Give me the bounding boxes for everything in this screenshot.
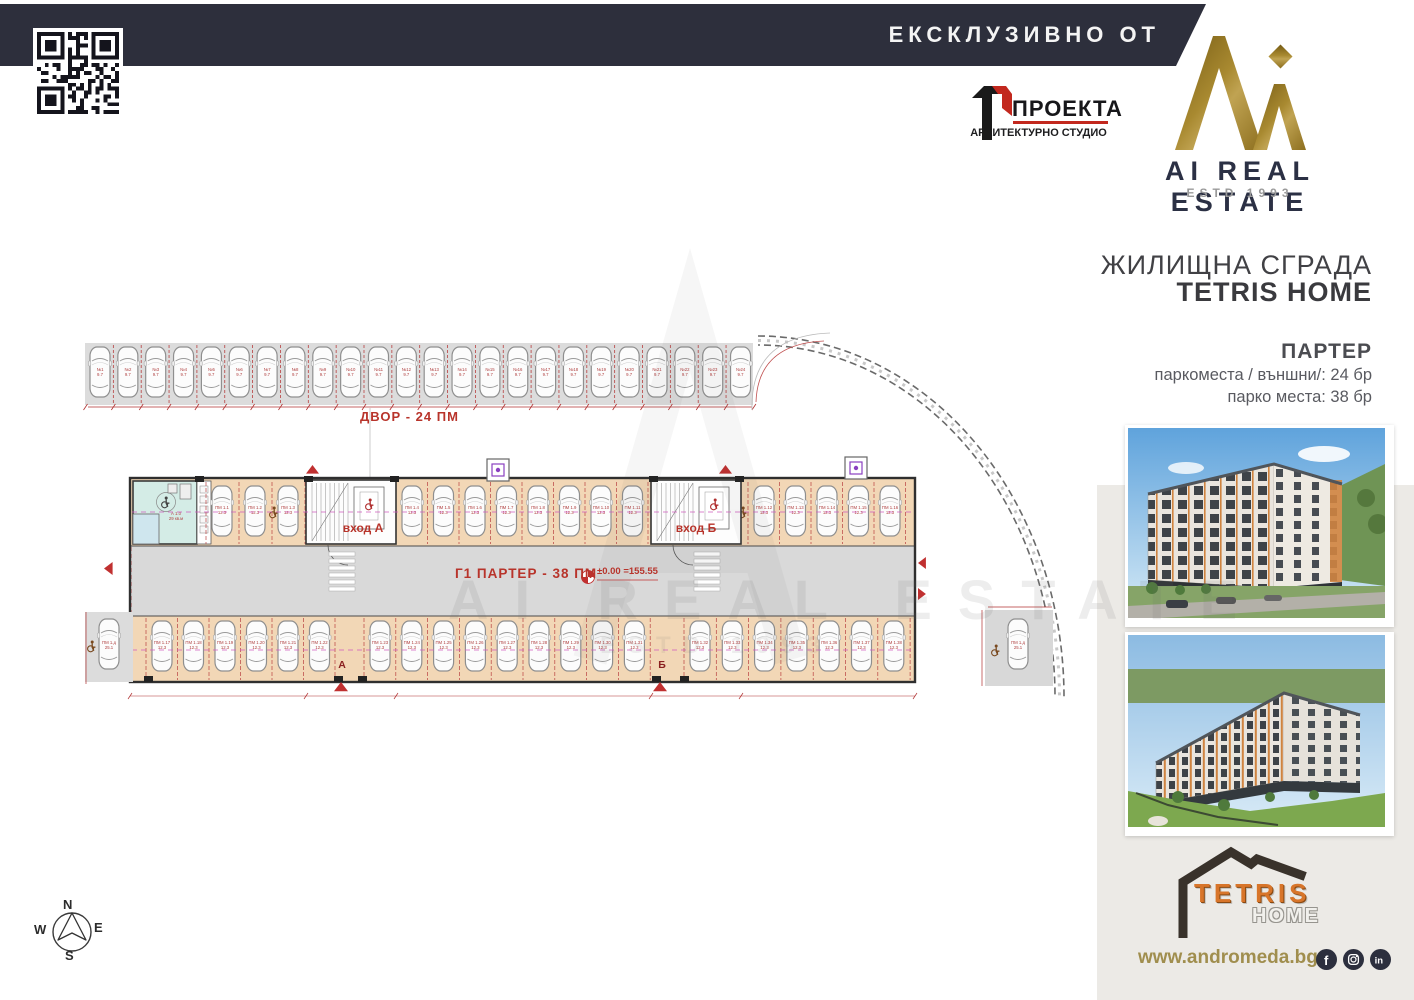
svg-text:12.3: 12.3 — [252, 645, 261, 650]
brand-estd: ESTD 1993 — [1098, 186, 1382, 200]
svg-text:12.3: 12.3 — [284, 510, 293, 515]
svg-text:№13: №13 — [430, 367, 440, 372]
svg-text:12.3: 12.3 — [760, 510, 769, 515]
svg-text:9.7: 9.7 — [348, 372, 355, 377]
svg-text:9.7: 9.7 — [487, 372, 494, 377]
svg-text:ПМ 1.38: ПМ 1.38 — [886, 640, 903, 645]
svg-text:№21: №21 — [652, 367, 662, 372]
door-b-letter: Б — [650, 659, 674, 671]
svg-text:ПМ 1.13: ПМ 1.13 — [787, 505, 804, 510]
svg-text:9.7: 9.7 — [181, 372, 188, 377]
svg-text:12.3: 12.3 — [189, 645, 198, 650]
svg-text:ПМ 1.5: ПМ 1.5 — [437, 505, 451, 510]
svg-text:9.7: 9.7 — [710, 372, 717, 377]
svg-text:12.3: 12.3 — [221, 645, 230, 650]
svg-text:ПМ 1.15: ПМ 1.15 — [850, 505, 867, 510]
svg-text:№7: №7 — [264, 367, 272, 372]
svg-text:f: f — [1324, 953, 1329, 968]
svg-text:ПМ 1.4: ПМ 1.4 — [405, 505, 419, 510]
compass-north: N — [63, 897, 72, 912]
svg-text:9.7: 9.7 — [97, 372, 104, 377]
level-mark-label: ±0.00 =155.55 — [597, 566, 707, 577]
svg-text:№6: №6 — [236, 367, 244, 372]
svg-text:№1: №1 — [97, 367, 105, 372]
tetris-logo-home-text: HOME — [1252, 905, 1352, 928]
svg-text:9.7: 9.7 — [626, 372, 633, 377]
svg-text:№9: №9 — [319, 367, 327, 372]
compass-south: S — [65, 948, 74, 963]
svg-text:12.3: 12.3 — [503, 645, 512, 650]
svg-text:9.7: 9.7 — [208, 372, 215, 377]
svg-text:12.3: 12.3 — [857, 645, 866, 650]
entrance-a-label: вход А — [330, 521, 396, 535]
instagram-icon[interactable] — [1343, 949, 1364, 970]
svg-text:ПМ 1.21: ПМ 1.21 — [280, 640, 297, 645]
svg-text:№8: №8 — [291, 367, 299, 372]
svg-text:ПМ 1.д: ПМ 1.д — [102, 640, 116, 645]
svg-text:ПМ 1.25: ПМ 1.25 — [435, 640, 452, 645]
svg-text:№12: №12 — [402, 367, 412, 372]
svg-text:№11: №11 — [374, 367, 384, 372]
svg-text:12.3: 12.3 — [597, 510, 606, 515]
svg-text:9.7: 9.7 — [153, 372, 160, 377]
svg-text:№5: №5 — [208, 367, 216, 372]
banner-label: ЕКСКЛУЗИВНО ОТ — [0, 4, 1160, 66]
svg-text:ПМ 1.11: ПМ 1.11 — [625, 505, 642, 510]
svg-text:12.3: 12.3 — [471, 645, 480, 650]
architect-logo-icon — [962, 82, 1112, 146]
compass-west: W — [34, 922, 46, 937]
floor-indoor-info: парко места: 38 бр — [952, 388, 1372, 407]
svg-text:№4: №4 — [180, 367, 188, 372]
svg-text:№17: №17 — [541, 367, 551, 372]
svg-text:№24: №24 — [736, 367, 746, 372]
building-render-2 — [1125, 632, 1394, 836]
svg-text:ПМ 1.37: ПМ 1.37 — [853, 640, 870, 645]
svg-text:12.3: 12.3 — [567, 645, 576, 650]
svg-text:9.7: 9.7 — [376, 372, 383, 377]
entrance-b-label: вход Б — [653, 521, 739, 535]
svg-text:12.3: 12.3 — [408, 510, 417, 515]
svg-text:ПМ 1.24: ПМ 1.24 — [404, 640, 421, 645]
svg-text:ПМ 1.16: ПМ 1.16 — [882, 505, 899, 510]
svg-text:12.3: 12.3 — [535, 645, 544, 650]
floor-outdoor-info: паркоместа / външни/: 24 бр — [952, 366, 1372, 385]
svg-text:9.7: 9.7 — [264, 372, 271, 377]
linkedin-icon[interactable]: in — [1370, 949, 1391, 970]
svg-text:9.7: 9.7 — [320, 372, 327, 377]
svg-text:№16: №16 — [513, 367, 523, 372]
svg-text:29 кв.м: 29 кв.м — [169, 516, 183, 521]
svg-text:ПМ 1.14: ПМ 1.14 — [819, 505, 836, 510]
svg-text:12.3: 12.3 — [565, 510, 574, 515]
svg-text:9.7: 9.7 — [292, 372, 299, 377]
svg-text:ПМ 1.28: ПМ 1.28 — [531, 640, 548, 645]
svg-text:ПМ 1.29: ПМ 1.29 — [563, 640, 580, 645]
svg-text:ПМ 1.3: ПМ 1.3 — [281, 505, 295, 510]
svg-text:25.1: 25.1 — [1014, 645, 1023, 650]
svg-text:№2: №2 — [124, 367, 132, 372]
svg-text:12.3: 12.3 — [158, 645, 167, 650]
svg-text:12.3: 12.3 — [439, 645, 448, 650]
svg-text:ПМ 1.10: ПМ 1.10 — [593, 505, 610, 510]
svg-text:9.7: 9.7 — [654, 372, 661, 377]
svg-text:9.7: 9.7 — [543, 372, 550, 377]
svg-text:ПМ 1.9: ПМ 1.9 — [563, 505, 577, 510]
svg-text:12.3: 12.3 — [854, 510, 863, 515]
svg-text:ПМ 1.22: ПМ 1.22 — [311, 640, 328, 645]
svg-text:9.7: 9.7 — [682, 372, 689, 377]
svg-text:in: in — [1375, 956, 1384, 967]
svg-text:9.7: 9.7 — [598, 372, 605, 377]
svg-text:№23: №23 — [708, 367, 718, 372]
svg-text:А 1.0: А 1.0 — [171, 511, 182, 516]
svg-text:9.7: 9.7 — [403, 372, 410, 377]
svg-text:ПМ 1.7: ПМ 1.7 — [500, 505, 514, 510]
svg-text:12.3: 12.3 — [218, 510, 227, 515]
svg-text:9.7: 9.7 — [459, 372, 466, 377]
svg-text:ПМ 1.26: ПМ 1.26 — [467, 640, 484, 645]
svg-text:12.3: 12.3 — [890, 645, 899, 650]
svg-text:ПМ 1.23: ПМ 1.23 — [372, 640, 389, 645]
svg-text:9.7: 9.7 — [125, 372, 132, 377]
svg-text:ПМ 1.6: ПМ 1.6 — [468, 505, 482, 510]
brochure-page: ЕКСКЛУЗИВНО ОТ ПРОЕКТА АРХИТЕКТУРНО СТУД… — [0, 0, 1414, 1000]
svg-text:9.7: 9.7 — [236, 372, 243, 377]
svg-text:№15: №15 — [485, 367, 495, 372]
svg-text:№14: №14 — [457, 367, 467, 372]
svg-text:ПМ 1.18: ПМ 1.18 — [185, 640, 202, 645]
door-a-letter: А — [330, 659, 354, 671]
svg-text:12.3: 12.3 — [315, 645, 324, 650]
floor-plan: №19.7№29.7№39.7№49.7№59.7№69.7№79.7№89.7… — [0, 0, 1100, 1000]
svg-text:№18: №18 — [569, 367, 579, 372]
svg-text:ПМ 1.17: ПМ 1.17 — [154, 640, 171, 645]
svg-text:12.3: 12.3 — [408, 645, 417, 650]
svg-text:9.7: 9.7 — [515, 372, 522, 377]
qr-code — [33, 28, 123, 118]
compass-east: E — [94, 920, 103, 935]
svg-text:ПМ 1.8: ПМ 1.8 — [531, 505, 545, 510]
svg-text:№20: №20 — [624, 367, 634, 372]
svg-text:ПМ 1.19: ПМ 1.19 — [217, 640, 234, 645]
floor-title: ПАРТЕР — [952, 340, 1372, 364]
svg-text:ПМ 1.1: ПМ 1.1 — [215, 505, 229, 510]
svg-text:12.3: 12.3 — [284, 645, 293, 650]
facebook-icon[interactable]: f — [1316, 949, 1337, 970]
project-name-title: TETRIS HOME — [952, 277, 1372, 308]
svg-text:№22: №22 — [680, 367, 690, 372]
svg-text:9.7: 9.7 — [431, 372, 438, 377]
svg-text:25.1: 25.1 — [105, 645, 114, 650]
svg-text:12.3: 12.3 — [534, 510, 543, 515]
svg-text:ПМ 1.27: ПМ 1.27 — [499, 640, 516, 645]
svg-text:12.3: 12.3 — [376, 645, 385, 650]
svg-text:№10: №10 — [346, 367, 356, 372]
svg-text:№19: №19 — [597, 367, 607, 372]
svg-text:ПМ 1.12: ПМ 1.12 — [756, 505, 773, 510]
yard-parking-label: ДВОР - 24 ПМ — [360, 409, 540, 424]
svg-text:№3: №3 — [152, 367, 160, 372]
website-link[interactable]: www.andromeda.bg — [1138, 947, 1308, 969]
svg-text:9.7: 9.7 — [570, 372, 577, 377]
svg-text:12.3: 12.3 — [886, 510, 895, 515]
svg-text:12.3: 12.3 — [502, 510, 511, 515]
svg-text:12.3: 12.3 — [251, 510, 260, 515]
svg-text:12.3: 12.3 — [791, 510, 800, 515]
svg-text:12.3: 12.3 — [439, 510, 448, 515]
svg-text:9.7: 9.7 — [738, 372, 745, 377]
svg-text:12.3: 12.3 — [471, 510, 480, 515]
svg-text:ПМ 1.д: ПМ 1.д — [1011, 640, 1025, 645]
svg-text:ПМ 1.2: ПМ 1.2 — [248, 505, 262, 510]
svg-text:ПМ 1.20: ПМ 1.20 — [248, 640, 265, 645]
svg-text:12.3: 12.3 — [628, 510, 637, 515]
svg-text:12.3: 12.3 — [823, 510, 832, 515]
watermark-estd: ESTD 1993 — [600, 632, 820, 660]
brand-logo-icon — [1165, 22, 1321, 154]
